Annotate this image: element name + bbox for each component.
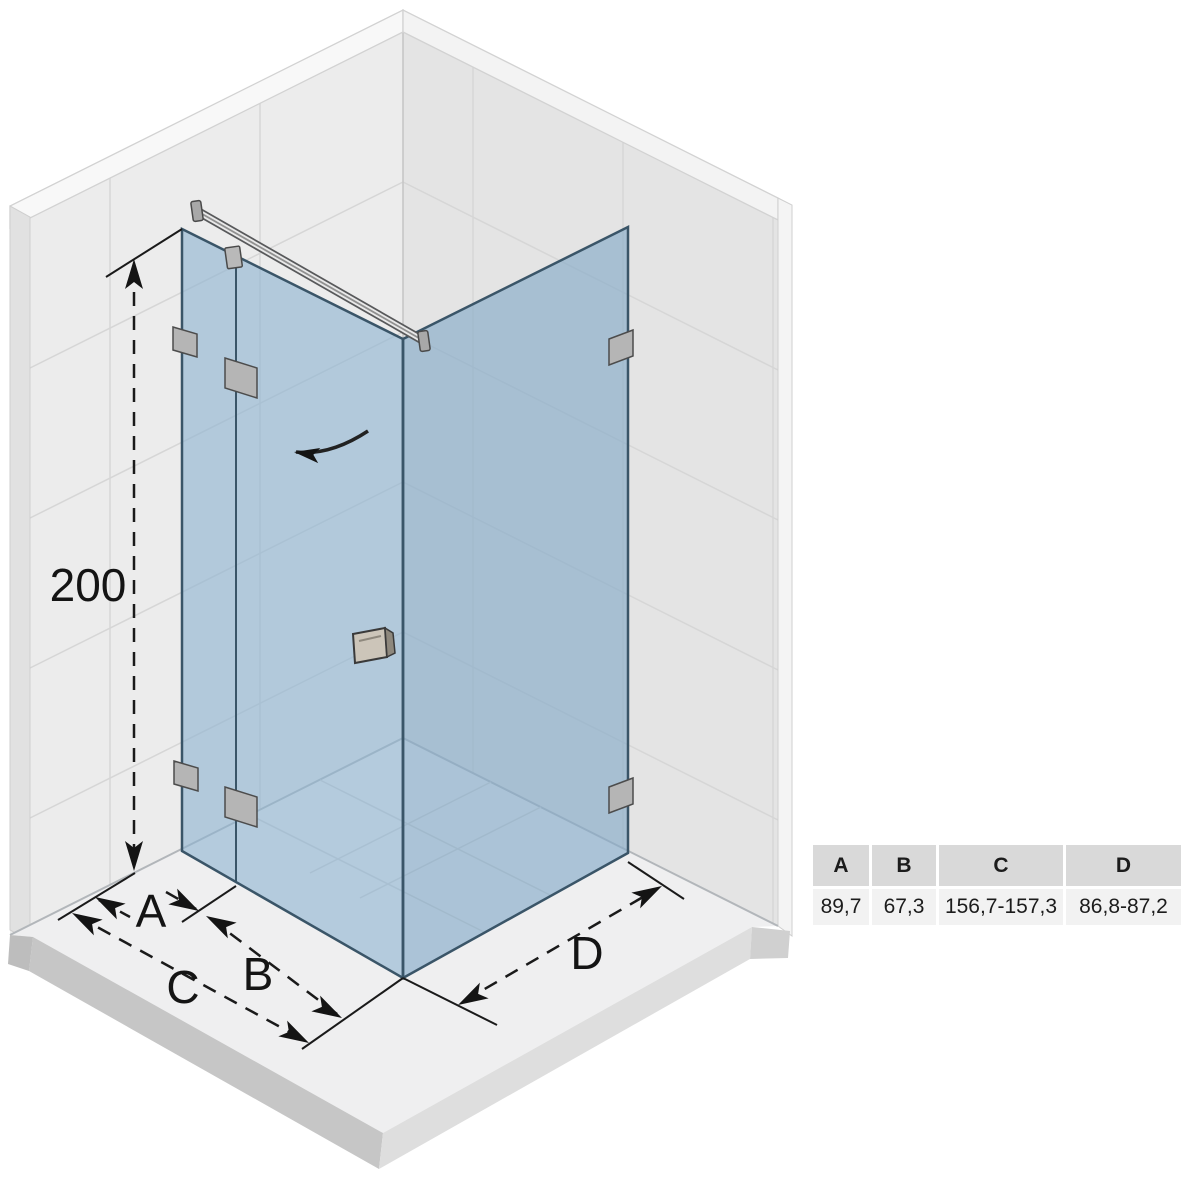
height-dim-label: 200 — [50, 559, 127, 611]
support-bar-glass-clamp — [225, 246, 243, 269]
dim-a-label: A — [136, 885, 167, 937]
shower-enclosure-diagram: 200 A B C D — [0, 0, 1200, 1200]
technical-drawing-page: 200 A B C D A B C D 89,7 67,3 156,7-157,… — [0, 0, 1200, 1200]
table-header-b: B — [872, 845, 936, 886]
right-wall-end-face — [778, 198, 792, 936]
dim-c-label: C — [166, 961, 199, 1013]
glass-panels — [182, 227, 628, 978]
table-value-c: 156,7-157,3 — [939, 889, 1063, 925]
side-glass-panel — [403, 227, 628, 978]
table-value-a: 89,7 — [813, 889, 869, 925]
dim-b-label: B — [243, 948, 274, 1000]
table-value-b: 67,3 — [872, 889, 936, 925]
support-bar-wall-anchor — [191, 200, 204, 221]
table-header-a: A — [813, 845, 869, 886]
table-header-c: C — [939, 845, 1063, 886]
table-header-d: D — [1066, 845, 1181, 886]
dim-d-label: D — [570, 927, 603, 979]
plinth-left-sliver — [8, 935, 33, 971]
table-value-d: 86,8-87,2 — [1066, 889, 1181, 925]
measurement-table: A B C D 89,7 67,3 156,7-157,3 86,8-87,2 — [813, 845, 1181, 925]
left-wall-end-face — [10, 206, 30, 941]
plinth-right-sliver — [750, 927, 790, 959]
support-bar-end-cap — [418, 330, 431, 351]
front-glass-panel — [182, 229, 403, 978]
